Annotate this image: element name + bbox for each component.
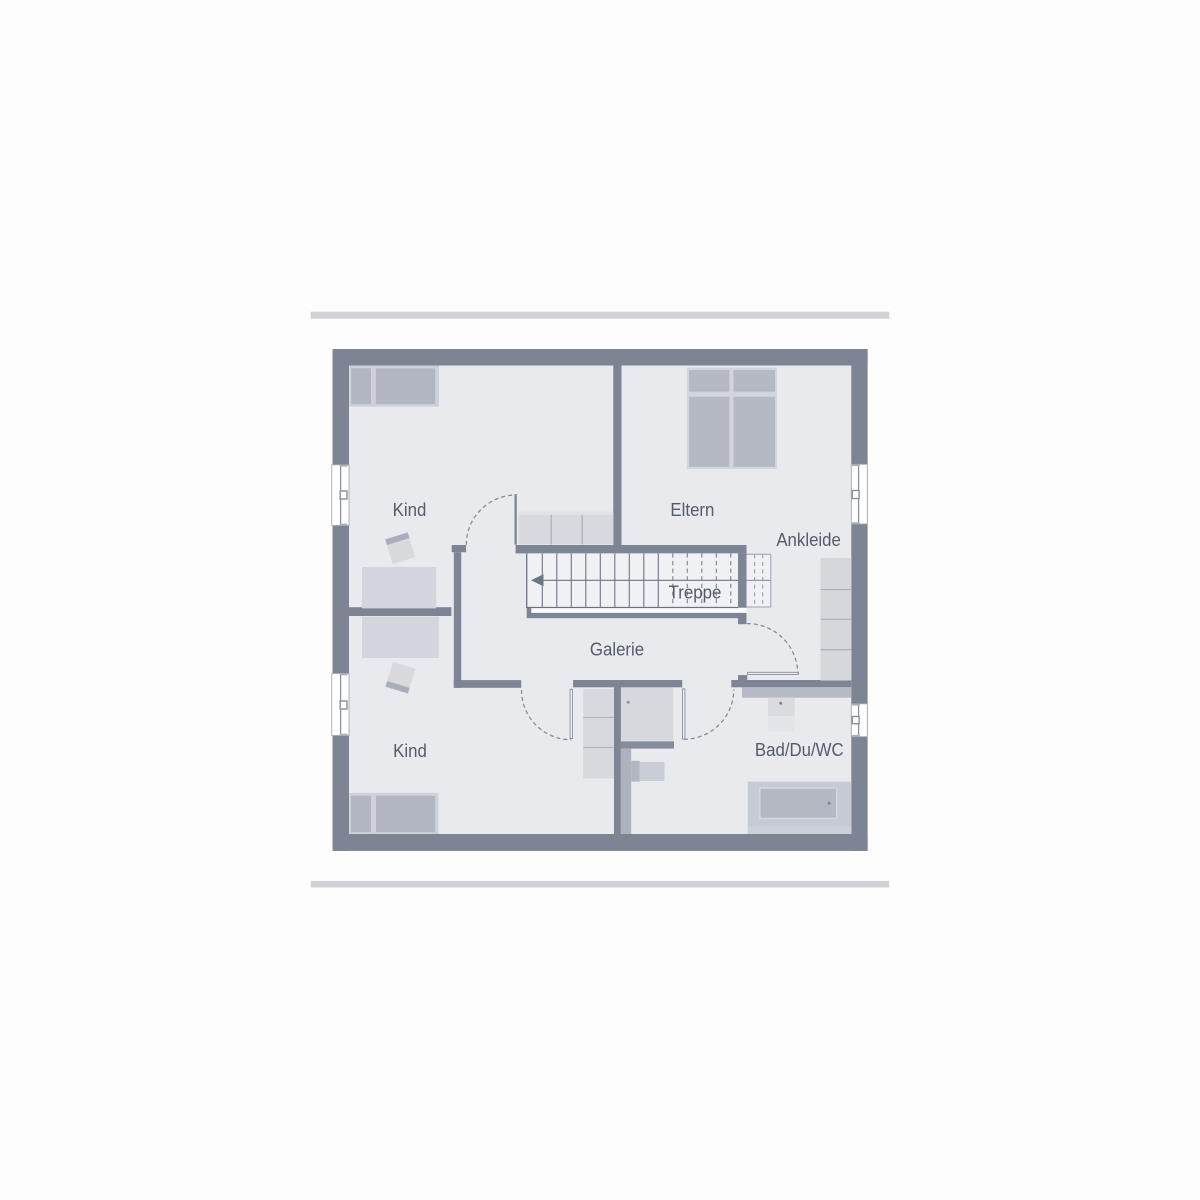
- svg-text:Bad/Du/WC: Bad/Du/WC: [755, 739, 844, 760]
- svg-text:Kind: Kind: [393, 499, 427, 520]
- svg-text:Eltern: Eltern: [670, 499, 714, 520]
- svg-text:Galerie: Galerie: [590, 639, 644, 660]
- svg-text:Treppe: Treppe: [669, 582, 722, 603]
- svg-text:Ankleide: Ankleide: [776, 529, 841, 550]
- svg-text:Kind: Kind: [393, 740, 427, 761]
